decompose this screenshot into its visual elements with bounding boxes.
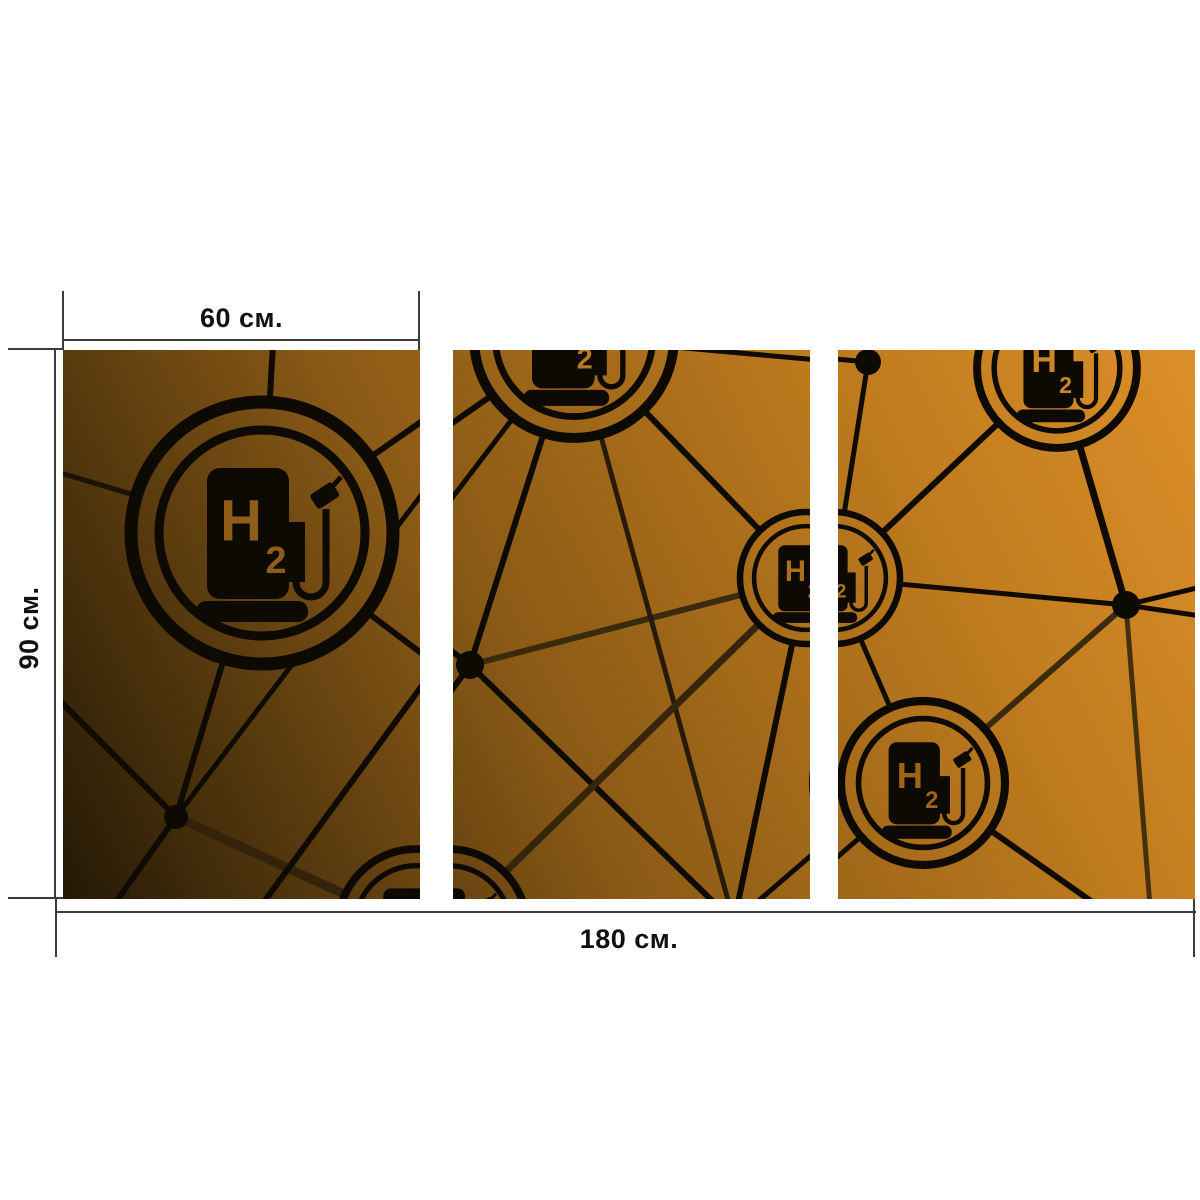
left-dimension-tick-top (8, 348, 63, 350)
left-dimension-line (54, 350, 56, 899)
panel-width-label: 60 см. (63, 303, 420, 334)
height-label: 90 см. (14, 563, 44, 693)
top-dimension-line (63, 339, 420, 341)
art-panel-left (63, 350, 420, 899)
art-panel-right (838, 350, 1195, 899)
total-width-label: 180 см. (63, 924, 1195, 955)
product-mockup: H 2 (0, 0, 1200, 1200)
bottom-dimension-tick-left (55, 899, 57, 957)
art-panel-center (453, 350, 810, 899)
bottom-dimension-line (56, 911, 1196, 913)
